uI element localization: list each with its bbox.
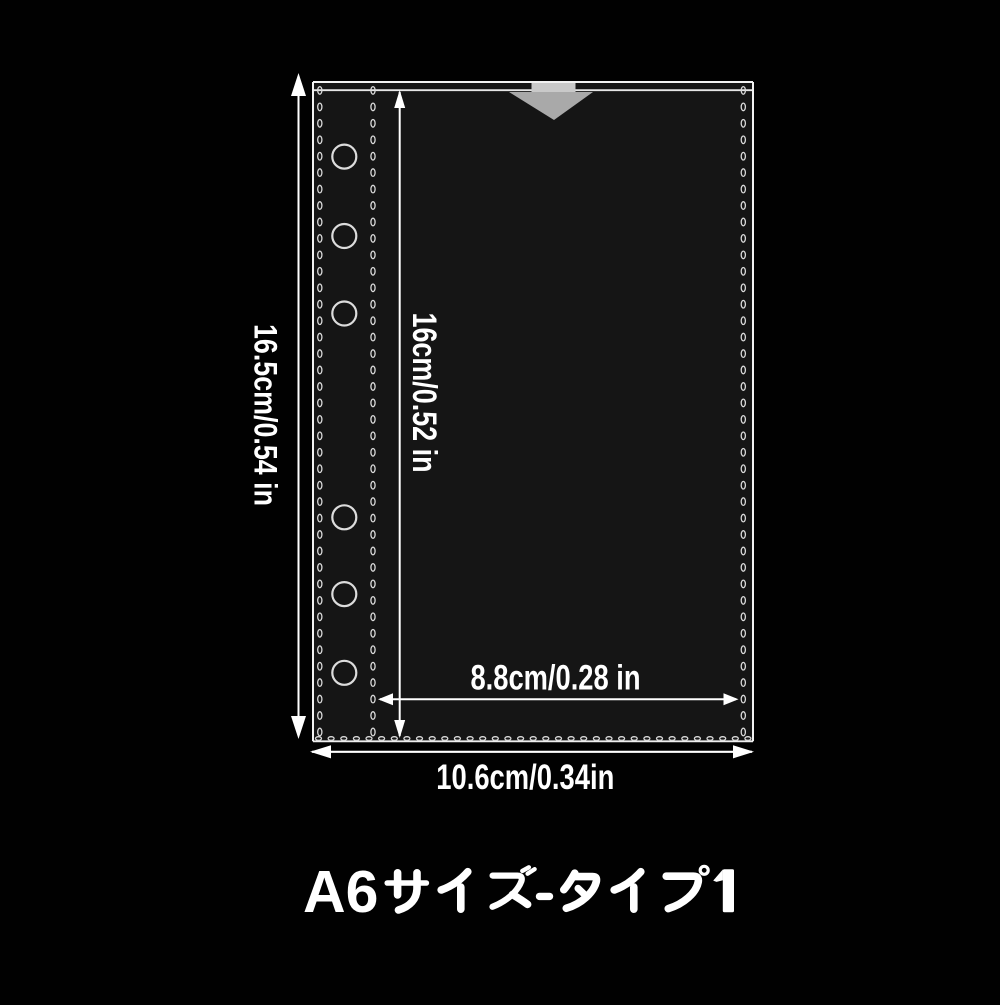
svg-text:16cm/0.52 in: 16cm/0.52 in [405,313,443,473]
svg-text:10.6cm/0.34in: 10.6cm/0.34in [436,758,614,797]
svg-text:A6: A6 [303,859,378,925]
svg-text:8.8cm/0.28 in: 8.8cm/0.28 in [471,659,641,698]
svg-text:16.5cm/0.54 in: 16.5cm/0.54 in [248,324,284,506]
